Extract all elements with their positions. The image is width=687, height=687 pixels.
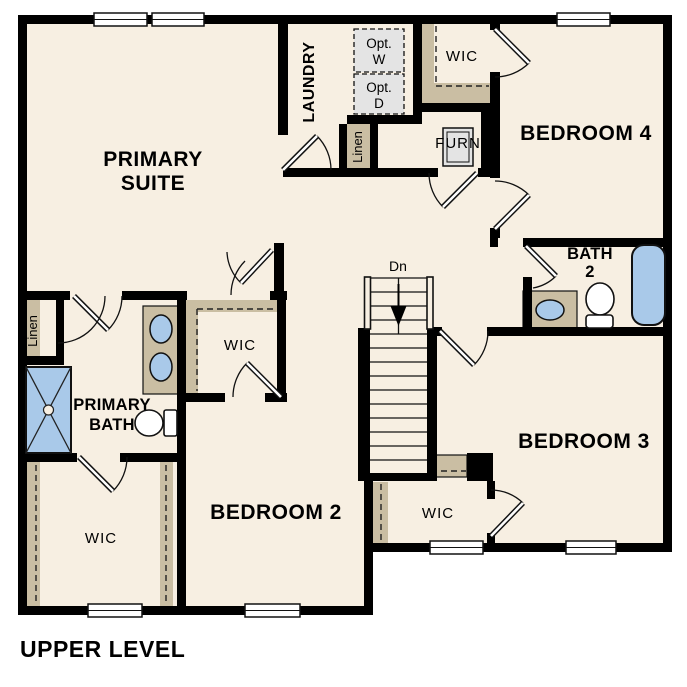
floor-plan-drawing: PRIMARY SUITE LAUNDRY Opt. W Opt. D WIC … [0,0,687,687]
plan-title: UPPER LEVEL [20,636,185,662]
primary-bath-label2: BATH [89,416,135,434]
linen-hall-label: Linen [350,131,365,163]
chase [467,453,493,481]
opt-dryer-label: Opt. [366,80,392,95]
wic-primary-hall-label: WIC [224,337,256,354]
primary-suite-label2: SUITE [121,172,185,195]
vanity-sink [150,315,172,343]
wic-bedroom3-label: WIC [422,505,454,522]
laundry-label: LAUNDRY [301,41,318,122]
floor-cutout [373,552,687,615]
bath2-tub [632,245,665,325]
bath2-toilet [586,283,614,328]
bath2-sink [536,300,564,320]
opt-dryer-label2: D [374,96,384,111]
bedroom3-label: BEDROOM 3 [518,430,650,453]
window [245,604,300,617]
window [152,13,204,26]
wic-bedroom4-label: WIC [446,48,478,65]
stair-rail [365,277,371,329]
vanity-sink [150,353,172,381]
stairs-dn-label: Dn [389,258,407,274]
window [88,604,142,617]
opt-washer-label2: W [373,52,386,67]
floor-plan-page: PRIMARY SUITE LAUNDRY Opt. W Opt. D WIC … [0,0,687,687]
linen-primary-label: Linen [25,315,40,347]
stair-rail [427,277,433,329]
wic-primary-label: WIC [85,530,117,547]
primary-suite-label: PRIMARY [103,148,203,171]
window [94,13,147,26]
bath2-label: BATH [567,245,613,263]
primary-shower [26,367,71,453]
window [557,13,610,26]
window [566,541,616,554]
bath2-label2: 2 [585,263,594,281]
bedroom4-label: BEDROOM 4 [520,122,652,145]
primary-bath-label: PRIMARY [73,396,151,414]
bedroom2-label: BEDROOM 2 [210,501,342,524]
opt-washer-label: Opt. [366,36,392,51]
window [430,541,483,554]
furnace-label: FURN [435,135,481,152]
